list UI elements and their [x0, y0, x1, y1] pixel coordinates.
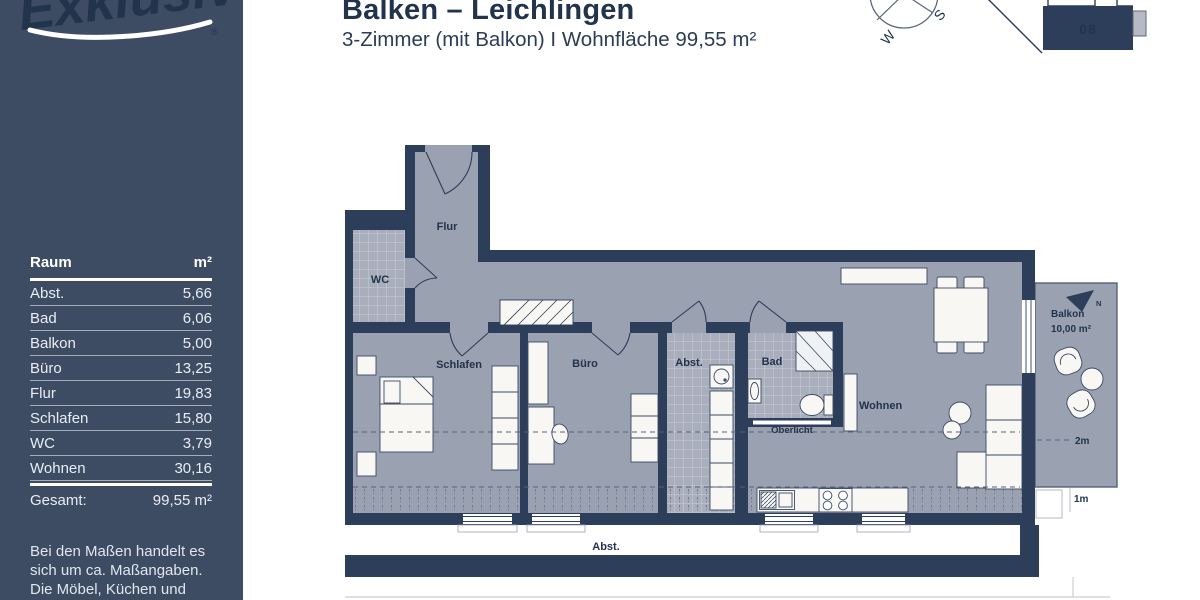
sideboard — [841, 268, 927, 284]
dining-chair — [937, 341, 957, 353]
bad-label: Bad — [762, 356, 783, 368]
table-row: Büro 13,25 — [30, 356, 212, 381]
dining-chair — [964, 341, 984, 353]
room-name: Flur — [30, 384, 56, 403]
north-letter: N — [1096, 299, 1101, 308]
registered-mark: ® — [211, 27, 218, 37]
room-name: WC — [30, 434, 55, 453]
window — [857, 514, 910, 532]
dining-table-set — [934, 277, 988, 353]
retaining-wall — [345, 555, 1039, 577]
shower — [796, 331, 833, 371]
page-title: Balken – Leichlingen — [342, 0, 634, 27]
washing-machine — [710, 365, 733, 388]
compass-siteplan-svg: W S 08 — [850, 0, 1160, 64]
room-area: 15,80 — [174, 409, 212, 428]
balkon-area-label: 10,00 m² — [1051, 324, 1092, 335]
buero-label: Büro — [572, 358, 598, 370]
toilet — [800, 395, 833, 416]
nightstand — [357, 356, 376, 375]
sidebar: Exklusiv ® Raum m² Abst. 5,66 Bad 6,06 B… — [0, 0, 243, 600]
abstell-label: Abst. — [675, 357, 703, 369]
room-name: Bad — [30, 309, 57, 328]
brand-logo-svg: Exklusiv ® — [14, 0, 229, 52]
flur-label: Flur — [437, 221, 458, 233]
table-total-row: Gesamt: 99,55 m² — [30, 483, 212, 510]
exterior-storage-strip — [345, 525, 1110, 597]
col-area: m² — [194, 254, 212, 271]
bed — [380, 377, 433, 452]
tv-cabinet — [844, 374, 857, 431]
unit-number: 08 — [1079, 21, 1097, 37]
room-area-table: Raum m² Abst. 5,66 Bad 6,06 Balkon 5,00 … — [30, 254, 212, 510]
room-area: 5,66 — [183, 284, 212, 303]
nightstand — [357, 452, 376, 476]
table-row: Wohnen 30,16 — [30, 456, 212, 481]
dining-chair — [964, 277, 984, 289]
wc-label: WC — [371, 274, 389, 286]
below-balcony-outline — [1036, 488, 1070, 518]
site-plan: 08 — [985, 0, 1146, 53]
room-area: 5,00 — [183, 334, 212, 353]
col-room: Raum — [30, 254, 72, 271]
dining-chair — [937, 277, 957, 289]
dining-table — [934, 288, 988, 342]
table-row: Flur 19,83 — [30, 381, 212, 406]
floor-plan-page: Exklusiv ® Raum m² Abst. 5,66 Bad 6,06 B… — [0, 0, 1200, 600]
daybed — [631, 394, 658, 462]
balcony-door — [1022, 300, 1035, 373]
window — [760, 514, 818, 532]
hall-closet — [500, 300, 573, 325]
office-shelf — [528, 342, 548, 404]
storage-shelves — [710, 391, 733, 510]
compass-west-label: W — [877, 27, 898, 48]
room-name: Wohnen — [30, 459, 86, 478]
compass-south-label: S — [930, 6, 948, 23]
room-area: 13,25 — [174, 359, 212, 378]
wardrobe — [492, 366, 518, 470]
room-area: 19,83 — [174, 384, 212, 403]
room-area: 3,79 — [183, 434, 212, 453]
room-name: Balkon — [30, 334, 76, 353]
room-area: 30,16 — [174, 459, 212, 478]
table-row: Bad 6,06 — [30, 306, 212, 331]
total-value: 99,55 m² — [153, 491, 212, 510]
room-name: Büro — [30, 359, 62, 378]
table-row: Abst. 5,66 — [30, 281, 212, 306]
kitchen-counter — [757, 488, 908, 512]
desk — [528, 407, 554, 464]
window — [527, 514, 585, 532]
building-08-balcony — [1133, 11, 1146, 36]
note-line: Bei den Maßen handelt es — [30, 542, 225, 561]
room-area: 6,06 — [183, 309, 212, 328]
balcony-table — [1081, 368, 1103, 390]
balkon-label: Balkon — [1051, 309, 1084, 320]
oberlicht-window — [753, 421, 831, 425]
one-meter-hatch-zone — [353, 487, 1022, 513]
note-line: sich um ca. Maßangaben. — [30, 561, 225, 580]
two-meter-label: 2m — [1075, 436, 1090, 447]
schlafen-label: Schlafen — [436, 359, 482, 371]
brand-logo: Exklusiv ® — [14, 0, 229, 52]
washbasin — [748, 379, 761, 403]
disclaimer-note: Bei den Maßen handelt es sich um ca. Maß… — [30, 542, 225, 600]
adjacent-building-outline — [1048, 0, 1133, 6]
floor-plan-svg: N Flur WC Schlafen Büro Abst. Bad Wohnen… — [340, 140, 1140, 600]
table-row: Balkon 5,00 — [30, 331, 212, 356]
table-row: Schlafen 15,80 — [30, 406, 212, 431]
compass-icon: W S — [870, 0, 949, 48]
room-name: Schlafen — [30, 409, 88, 428]
wohnen-label: Wohnen — [859, 400, 902, 412]
exterior-storage-label: Abst. — [592, 541, 620, 553]
total-label: Gesamt: — [30, 491, 87, 510]
oberlicht-label: Oberlicht — [771, 425, 814, 436]
window — [458, 514, 517, 532]
table-row: WC 3,79 — [30, 431, 212, 456]
table-header: Raum m² — [30, 254, 212, 281]
note-line: Die Möbel, Küchen und — [30, 580, 225, 599]
one-meter-label: 1m — [1074, 494, 1089, 505]
page-subtitle: 3-Zimmer (mit Balkon) I Wohnfläche 99,55… — [342, 28, 756, 52]
room-name: Abst. — [30, 284, 64, 303]
